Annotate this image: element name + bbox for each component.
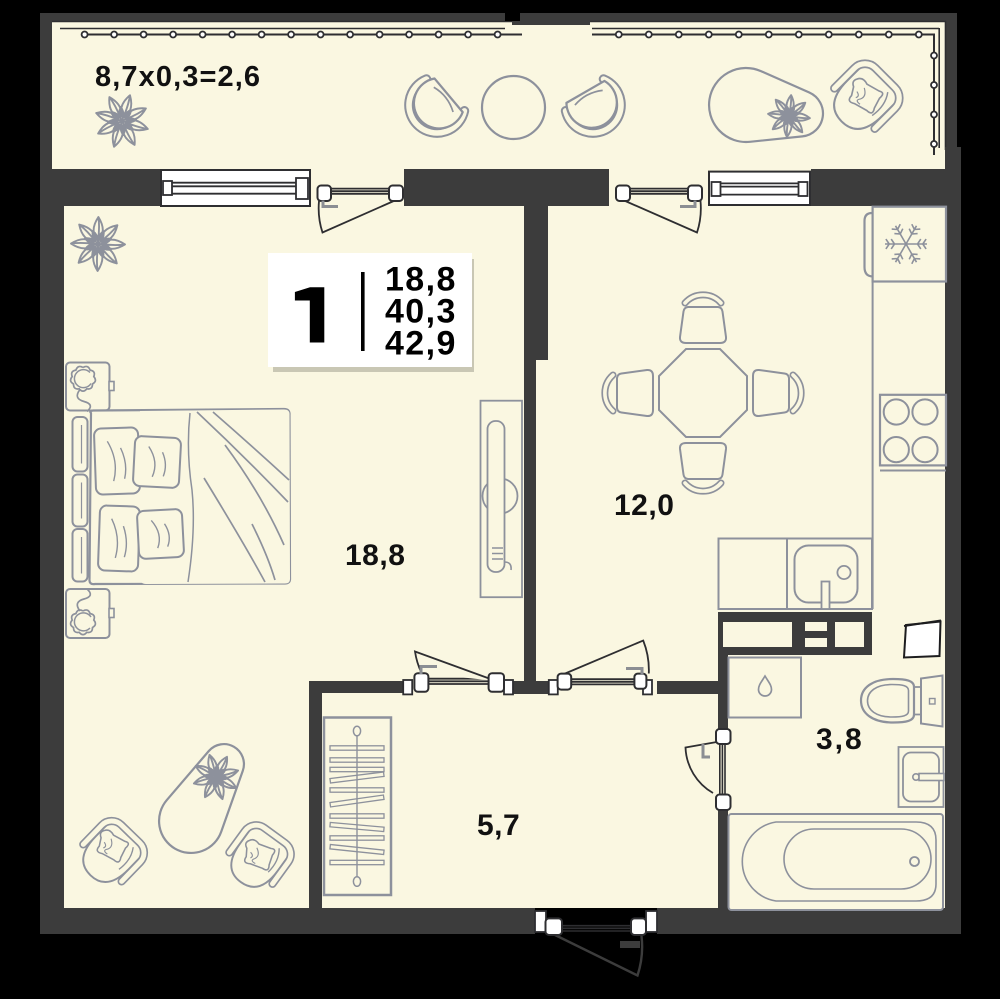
svg-text:5,7: 5,7	[477, 809, 520, 842]
svg-text:8,7x0,3=2,6: 8,7x0,3=2,6	[95, 61, 261, 93]
svg-text:18,8: 18,8	[345, 539, 405, 572]
svg-text:42,9: 42,9	[385, 325, 457, 363]
svg-text:3,8: 3,8	[816, 723, 864, 756]
svg-text:12,0: 12,0	[614, 489, 674, 522]
